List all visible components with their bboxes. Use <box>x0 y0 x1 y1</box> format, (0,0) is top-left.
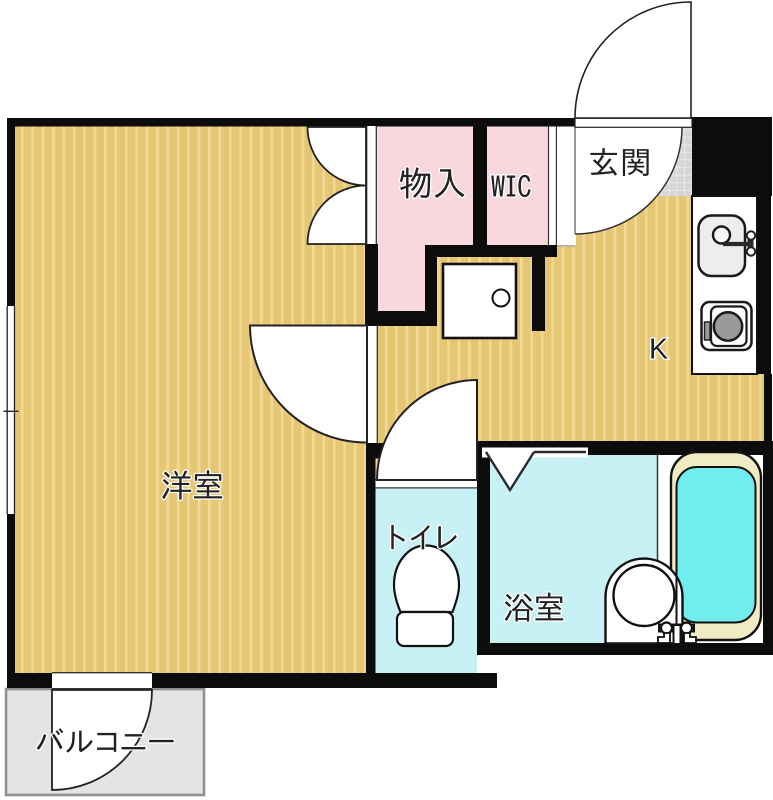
svg-text:K: K <box>649 334 668 366</box>
